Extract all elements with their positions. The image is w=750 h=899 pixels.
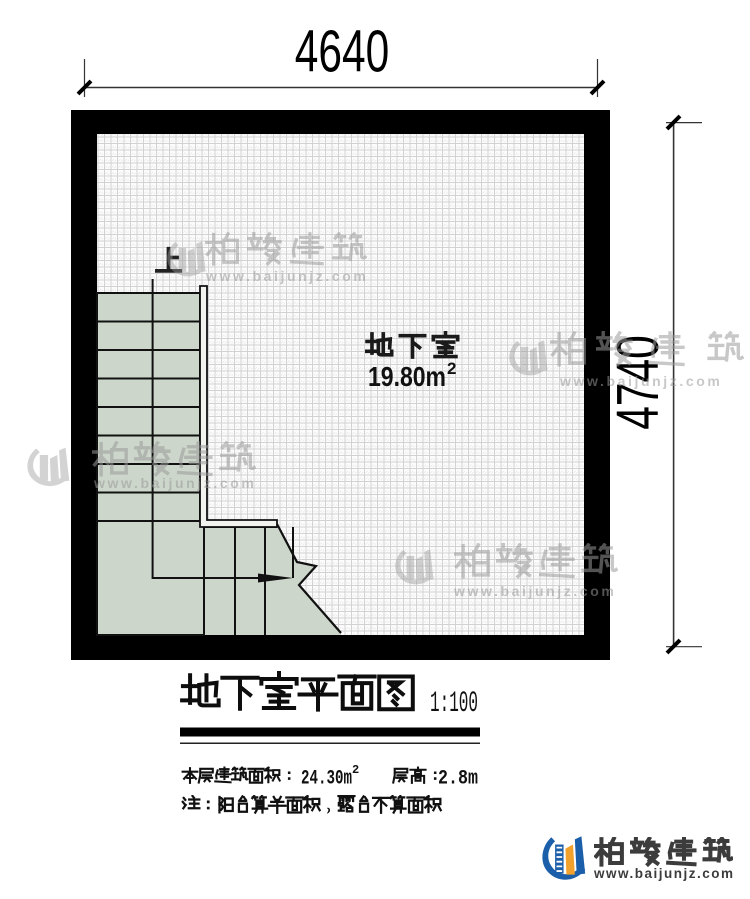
svg-text:www.baijunjz.com: www.baijunjz.com [93, 475, 256, 491]
svg-text:19.80m: 19.80m [368, 361, 446, 392]
svg-text:2.8m: 2.8m [438, 768, 478, 791]
svg-text:www.baijunjz.com: www.baijunjz.com [559, 373, 722, 389]
svg-text:www.baijunjz.com: www.baijunjz.com [593, 866, 735, 881]
svg-text:1:100: 1:100 [430, 687, 478, 721]
svg-text:www.baijunjz.com: www.baijunjz.com [205, 268, 368, 284]
svg-text:www.baijunjz.com: www.baijunjz.com [453, 583, 616, 599]
svg-text:2: 2 [352, 763, 359, 777]
svg-text:4640: 4640 [295, 18, 389, 85]
svg-text:2: 2 [447, 359, 456, 378]
svg-text:24.30m: 24.30m [301, 768, 352, 791]
